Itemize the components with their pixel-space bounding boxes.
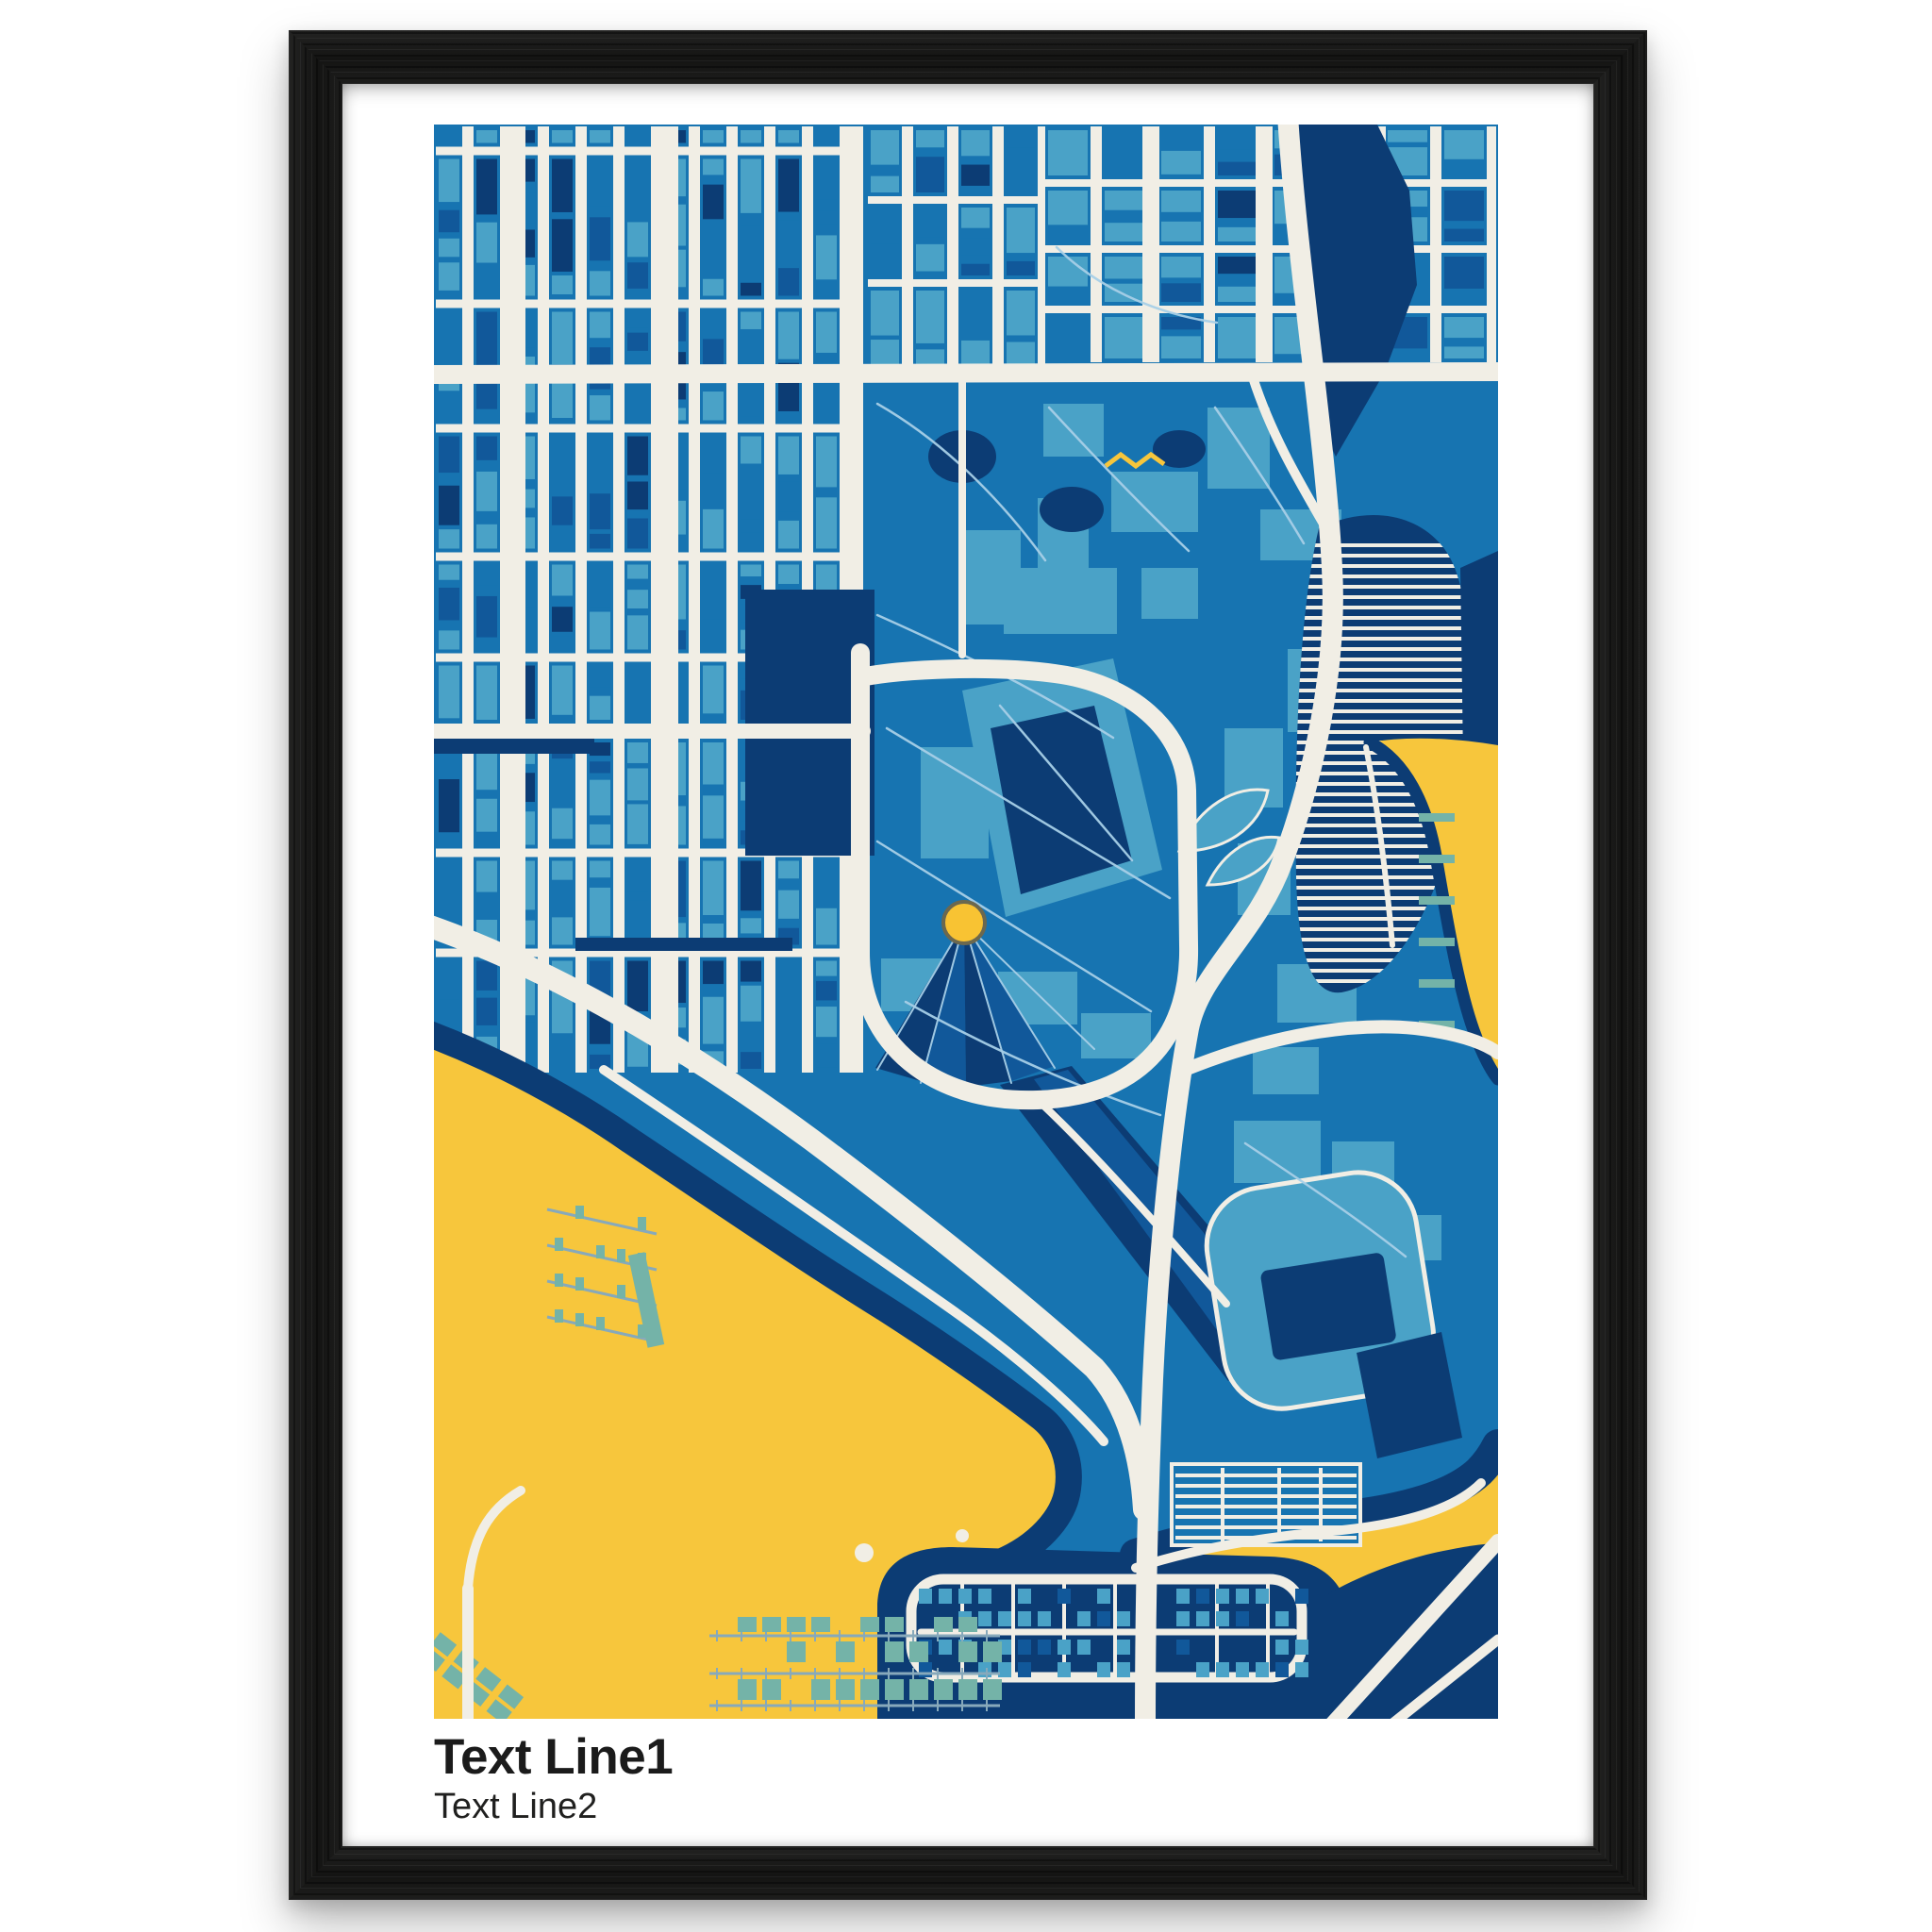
caption-subtitle: Text Line2 [434,1789,673,1826]
frame-edge-right [1593,30,1647,1900]
caption: Text Line1 Text Line2 [434,1731,673,1826]
pier-knob [956,1529,969,1542]
frame-edge-bottom [289,1846,1647,1900]
poster-matte: Text Line1 Text Line2 [342,84,1593,1846]
page-background: Text Line1 Text Line2 [0,0,1932,1932]
poster-frame: Text Line1 Text Line2 [289,30,1647,1900]
city-map [434,125,1498,1719]
caption-title: Text Line1 [434,1731,673,1784]
frame-edge-top [289,30,1647,84]
pier-knob [855,1543,874,1562]
map-marker [943,902,985,943]
city-map-svg [434,125,1498,1719]
frame-edge-left [289,30,342,1900]
